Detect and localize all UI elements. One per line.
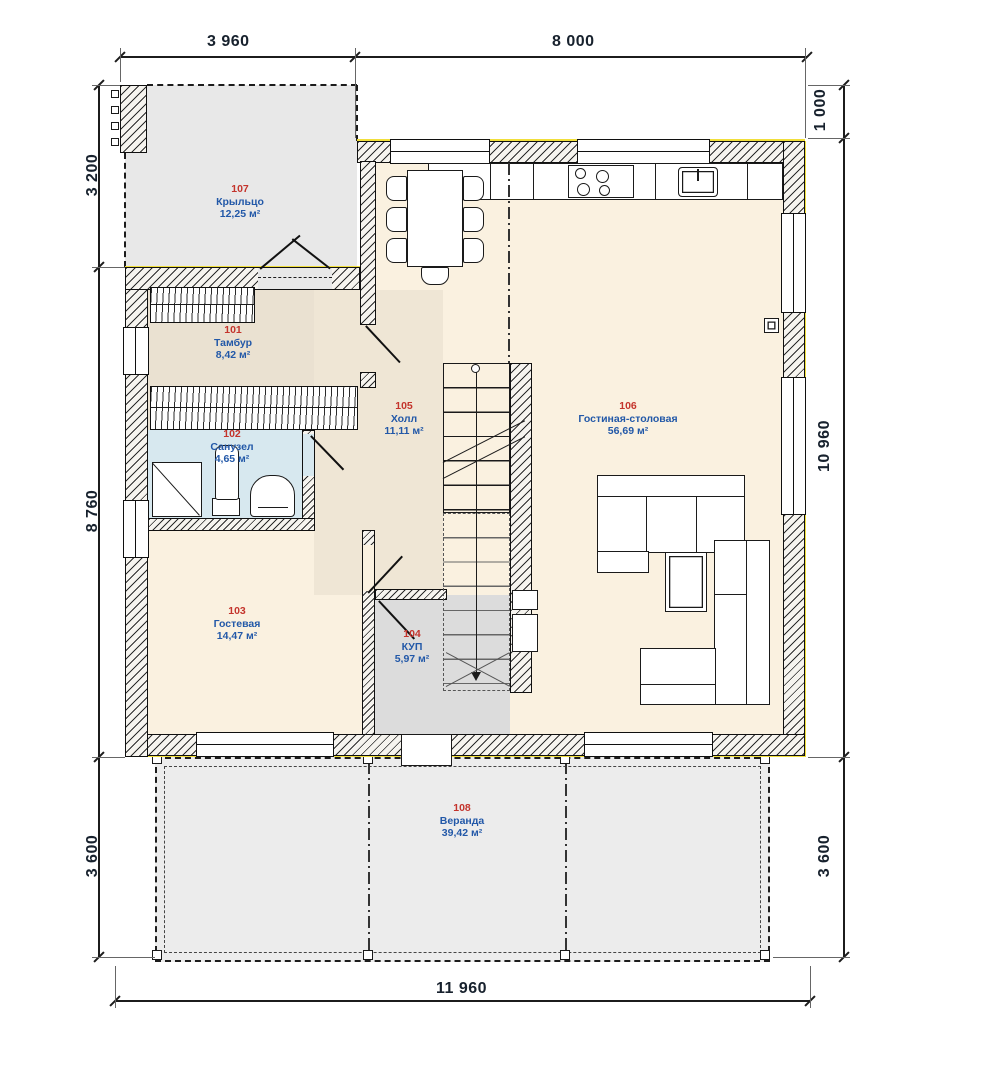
veranda-post (152, 950, 162, 960)
wall-tambour-right-lower (360, 372, 376, 388)
room-106-label: 106 Гостиная-столовая 56,69 м² (578, 400, 677, 438)
kitchen-zone-line (508, 163, 510, 363)
dining-chair (463, 176, 484, 201)
sofa-corner-back-line (641, 684, 716, 685)
veranda-divider-line (565, 762, 567, 958)
room-area: 4,65 м² (210, 453, 253, 466)
wall-marker (764, 318, 779, 333)
room-name: Тамбур (214, 337, 252, 350)
veranda-door-threshold (401, 734, 452, 766)
shower-cabin (152, 462, 202, 517)
extension-line (120, 48, 121, 82)
room-area: 56,69 м² (578, 425, 677, 438)
wall-bath-bottom (148, 518, 315, 531)
closet-top-divider (150, 304, 255, 305)
extension-line (810, 966, 811, 1008)
porch-stub-tooth (111, 122, 119, 130)
room-102-label: 102 Санузел 4,65 м² (210, 428, 253, 466)
stove-burner (599, 185, 610, 196)
room-number: 104 (395, 628, 430, 641)
kitchen-counter-divider (655, 164, 656, 199)
room-name: Веранда (440, 815, 485, 828)
coffee-table (665, 552, 707, 612)
dim-left-2: 8 760 (84, 476, 102, 546)
room-number: 101 (214, 324, 252, 337)
porch-floor (125, 85, 357, 267)
sofa-right-back-line (746, 541, 747, 704)
stairs-direction-arrow (471, 672, 481, 681)
shower-diagonal (152, 463, 200, 516)
washbasin-pedestal (212, 498, 240, 516)
room-area: 8,42 м² (214, 349, 252, 362)
dining-chair (386, 207, 407, 232)
stove-burner (575, 168, 586, 179)
guest-door-opening (363, 545, 374, 591)
toilet-seat-line (258, 507, 288, 508)
dim-left-1: 3 200 (84, 140, 102, 210)
sofa-right-seat-divider (715, 594, 746, 595)
room-area: 14,47 м² (214, 630, 261, 643)
sofa-top-seat-divider (696, 497, 697, 552)
sofa-top-chaise (597, 551, 649, 573)
porch-stub-tooth (111, 138, 119, 146)
hall-floor (314, 290, 443, 595)
stove-burner (596, 170, 609, 183)
window-top-1 (390, 139, 490, 164)
dim-top-2: 8 000 (552, 33, 595, 51)
veranda-post (560, 950, 570, 960)
bath-door-opening (303, 434, 314, 476)
dining-chair (463, 238, 484, 263)
dim-right-3: 3 600 (816, 821, 834, 891)
room-number: 103 (214, 605, 261, 618)
closet-bottom-divider (150, 407, 358, 408)
porch-boundary-left (124, 153, 126, 267)
floor-plan-canvas: 101 Тамбур 8,42 м² 102 Санузел 4,65 м² 1… (0, 0, 994, 1080)
room-area: 5,97 м² (395, 653, 430, 666)
extension-line (808, 757, 850, 758)
dining-chair (421, 267, 449, 285)
window-right-2 (781, 377, 806, 515)
kitchen-counter-divider (533, 164, 534, 199)
dim-left-3: 3 600 (84, 821, 102, 891)
extension-line (92, 957, 155, 958)
boiler-unit (512, 590, 538, 610)
wall-tambour-right (360, 161, 376, 325)
room-area: 11,11 м² (384, 425, 423, 438)
dining-chair (463, 207, 484, 232)
stove-burner (577, 183, 590, 196)
kitchen-counter-divider (490, 164, 491, 199)
stairs-start-circle (471, 364, 480, 373)
window-bottom-2 (584, 732, 713, 757)
dim-right-2: 10 960 (816, 411, 834, 481)
veranda-divider-line (368, 762, 370, 958)
room-name: КУП (395, 641, 430, 654)
extension-line (355, 48, 356, 138)
room-name: Санузел (210, 441, 253, 454)
dimension-line-right (843, 85, 845, 957)
sofa-right (714, 540, 770, 705)
dining-chair (386, 176, 407, 201)
veranda-post (760, 950, 770, 960)
porch-stub-tooth (111, 106, 119, 114)
porch-wall-stub (120, 85, 147, 153)
window-top-2 (577, 139, 710, 164)
extension-line (92, 85, 120, 86)
extension-line (92, 267, 125, 268)
window-left-1 (123, 327, 149, 375)
room-107-label: 107 Крыльцо 12,25 м² (216, 183, 264, 221)
window-right-1 (781, 213, 806, 313)
extension-line (805, 48, 806, 138)
dim-bottom-1: 11 960 (436, 980, 487, 998)
room-area: 39,42 м² (440, 827, 485, 840)
dimension-line-top (120, 56, 807, 58)
dim-top-1: 3 960 (207, 33, 250, 51)
dining-table (407, 170, 463, 267)
window-bottom-1 (196, 732, 334, 757)
sofa-right-corner (640, 648, 716, 705)
sink-tap (697, 169, 699, 181)
entry-door-opening (258, 268, 332, 290)
room-number: 107 (216, 183, 264, 196)
boiler-unit (512, 614, 538, 652)
room-number: 106 (578, 400, 677, 413)
porch-boundary-right (356, 85, 358, 141)
room-number: 108 (440, 802, 485, 815)
window-left-2 (123, 500, 149, 558)
room-104-label: 104 КУП 5,97 м² (395, 628, 430, 666)
room-name: Холл (384, 413, 423, 426)
room-103-label: 103 Гостевая 14,47 м² (214, 605, 261, 643)
kitchen-counter-divider (747, 164, 748, 199)
dim-right-1: 1 000 (812, 75, 830, 145)
wall-utility-top (375, 589, 447, 600)
extension-line (92, 757, 125, 758)
room-area: 12,25 м² (216, 208, 264, 221)
dimension-line-bottom (115, 1000, 810, 1002)
room-name: Гостиная-столовая (578, 413, 677, 426)
sofa-top-back-line (598, 496, 744, 497)
extension-line (773, 957, 850, 958)
room-number: 105 (384, 400, 423, 413)
veranda-inner-outline (164, 766, 761, 953)
room-105-label: 105 Холл 11,11 м² (384, 400, 423, 438)
room-number: 102 (210, 428, 253, 441)
room-name: Крыльцо (216, 196, 264, 209)
porch-stub-tooth (111, 90, 119, 98)
toilet (250, 475, 295, 517)
room-name: Гостевая (214, 618, 261, 631)
room-101-label: 101 Тамбур 8,42 м² (214, 324, 252, 362)
dining-chair (386, 238, 407, 263)
sofa-top-seat-divider (646, 497, 647, 552)
extension-line (115, 966, 116, 1008)
room-108-label: 108 Веранда 39,42 м² (440, 802, 485, 840)
porch-boundary-top (147, 84, 357, 86)
stairs-center-rail (476, 370, 477, 675)
entry-door-lintel (258, 277, 332, 278)
veranda-post (363, 950, 373, 960)
